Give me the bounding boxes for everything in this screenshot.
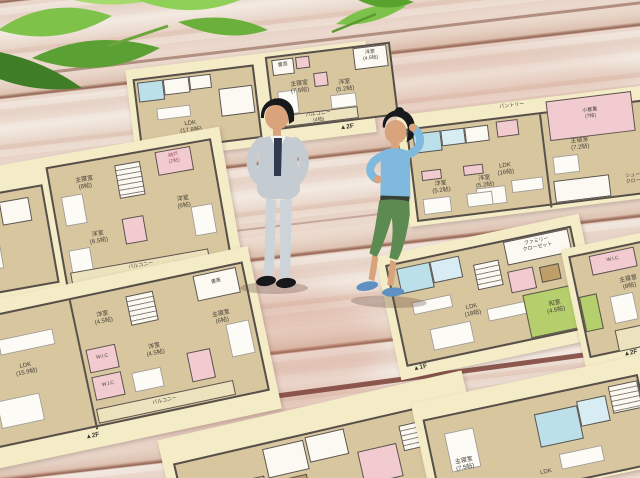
room-closet xyxy=(539,263,562,283)
room-closet xyxy=(186,348,216,382)
room xyxy=(304,428,349,462)
bed xyxy=(190,203,217,236)
staircase xyxy=(608,380,640,414)
bed xyxy=(466,191,494,208)
room xyxy=(262,440,310,478)
room xyxy=(553,174,611,203)
kitchen-island xyxy=(156,104,191,120)
sofa xyxy=(559,445,605,470)
room-closet xyxy=(496,119,520,138)
room xyxy=(0,197,32,226)
room-label: 洋室 (4.5帖) xyxy=(80,307,126,330)
room-bath xyxy=(534,405,584,447)
figure-shadow xyxy=(240,282,308,294)
table xyxy=(0,392,45,429)
room xyxy=(189,74,213,91)
businessman-figurine xyxy=(236,96,320,296)
staircase xyxy=(473,259,504,290)
room-closet xyxy=(313,72,329,88)
room-bath xyxy=(137,80,165,103)
photo-scene: LDK (17.8帖) ▲1F 書斎 洋室 (4.5帖) 主寝室 (7.5帖) … xyxy=(0,0,640,478)
bed xyxy=(0,239,4,274)
staircase xyxy=(114,161,146,199)
bed xyxy=(131,367,165,393)
room-label: 主寝室 (8帖) xyxy=(602,271,640,295)
woman-figurine xyxy=(342,104,445,312)
sofa xyxy=(511,176,544,193)
bed xyxy=(609,292,638,324)
kitchen-counter xyxy=(0,328,56,355)
figure-shadow xyxy=(351,295,427,310)
bed xyxy=(225,319,256,357)
staircase xyxy=(125,291,159,326)
plant-leaf-small xyxy=(326,0,436,38)
room xyxy=(579,293,604,332)
room-label: 洋室 (6.5帖) xyxy=(74,227,124,249)
room-closet xyxy=(295,56,310,70)
bed xyxy=(61,193,88,226)
table xyxy=(429,321,475,351)
room-closet xyxy=(507,266,537,293)
room-washroom xyxy=(576,395,611,427)
room xyxy=(163,76,191,95)
floor-marker: ▲1F xyxy=(413,363,428,373)
room-label: 主寝室 (8帖) xyxy=(60,173,110,195)
room xyxy=(357,443,404,478)
floor-plan-2f: W.I.C 主寝室 (8帖) バルコニー (6帖) xyxy=(568,234,640,359)
room-label: 洋室 (4.5帖) xyxy=(130,339,180,362)
room xyxy=(464,125,490,144)
bed xyxy=(552,154,580,175)
room-closet xyxy=(122,215,148,244)
floor-marker: ▲2F xyxy=(85,431,100,441)
room-label: LDK (15.9帖) xyxy=(0,356,59,383)
